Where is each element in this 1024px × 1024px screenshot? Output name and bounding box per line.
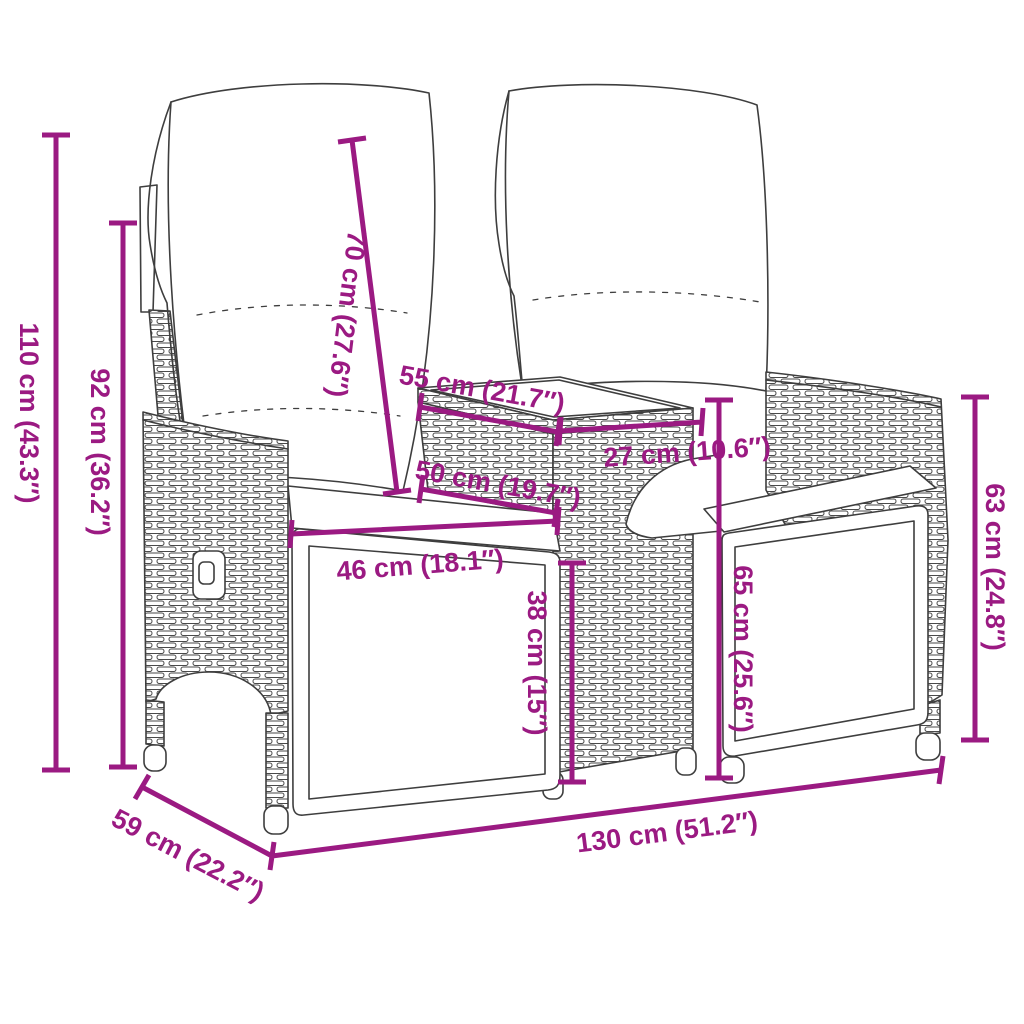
dim-label-92: 92 cm (36.2″): [85, 368, 115, 536]
left-armrest-rear-leg: [266, 713, 288, 808]
recline-handle-notch: [199, 562, 214, 584]
diagram-canvas: 110 cm (43.3″) 92 cm (36.2″) 70 cm (27.6…: [0, 0, 1024, 1024]
right-armrest-foot: [916, 733, 940, 760]
dim-label-65: 65 cm (25.6″): [728, 565, 758, 733]
left-armrest-front-foot: [144, 745, 166, 771]
dim-label-110: 110 cm (43.3″): [14, 322, 44, 503]
left-armrest-rear-foot: [264, 806, 288, 834]
dim-line-110: [42, 135, 70, 770]
dim-label-63: 63 cm (24.8″): [980, 483, 1010, 651]
table-right-foot: [676, 748, 696, 775]
dim-total-height: [42, 135, 70, 770]
dim-label-38: 38 cm (15″): [522, 590, 552, 735]
dim-label-59: 59 cm (22.2″): [107, 803, 269, 907]
dimension-diagram: 110 cm (43.3″) 92 cm (36.2″) 70 cm (27.6…: [0, 0, 1024, 1024]
right-back-cushion: [505, 85, 767, 392]
left-armrest-front-leg: [146, 700, 164, 746]
